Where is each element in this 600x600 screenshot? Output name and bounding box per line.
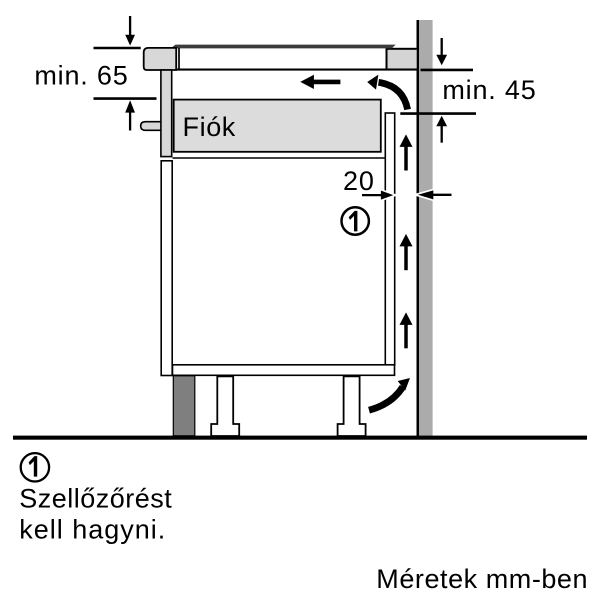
svg-text:Méretek mm-ben: Méretek mm-ben [376, 564, 588, 594]
svg-text:Fiók: Fiók [183, 112, 236, 142]
svg-text:Szellőzőrést: Szellőzőrést [19, 483, 172, 513]
svg-text:min. 65: min. 65 [34, 60, 128, 90]
svg-text:20: 20 [343, 166, 375, 196]
svg-text:min. 45: min. 45 [442, 75, 536, 105]
svg-text:kell hagyni.: kell hagyni. [19, 514, 166, 544]
